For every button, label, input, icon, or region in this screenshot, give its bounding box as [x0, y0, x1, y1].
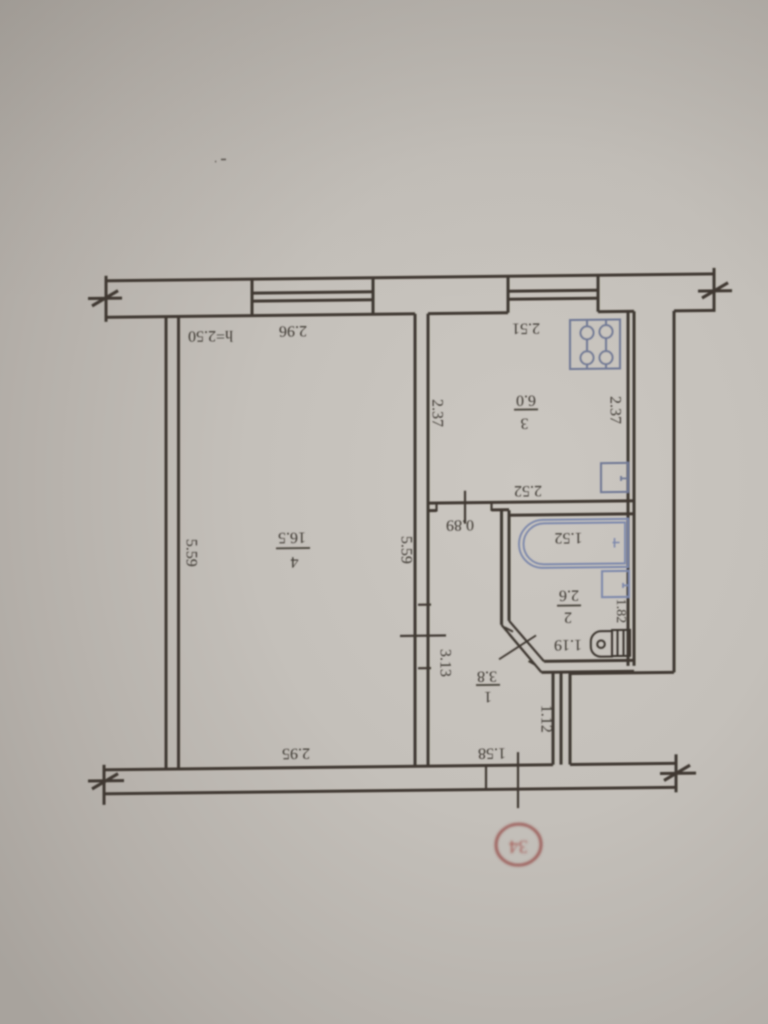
- svg-text:1.58: 1.58: [478, 744, 506, 761]
- svg-text:3.8: 3.8: [477, 667, 497, 684]
- svg-text:1.82: 1.82: [613, 599, 628, 624]
- svg-text:2.37: 2.37: [606, 396, 623, 424]
- svg-text:2.96: 2.96: [279, 322, 307, 339]
- svg-text:3: 3: [521, 414, 529, 431]
- svg-text:1.52: 1.52: [555, 529, 583, 546]
- svg-text:4: 4: [291, 553, 299, 570]
- svg-text:2.6: 2.6: [559, 586, 579, 603]
- svg-text:1.12: 1.12: [537, 705, 554, 733]
- svg-text:3.13: 3.13: [436, 649, 453, 677]
- svg-text:2.51: 2.51: [512, 319, 540, 336]
- svg-text:2.52: 2.52: [514, 482, 542, 499]
- svg-text:h=2.50: h=2.50: [188, 327, 233, 345]
- svg-text:2.95: 2.95: [282, 744, 310, 761]
- svg-text:34: 34: [509, 836, 528, 857]
- svg-text:2: 2: [564, 608, 572, 625]
- svg-text:5.59: 5.59: [397, 536, 414, 564]
- svg-text:6.0: 6.0: [516, 391, 536, 408]
- svg-text:1: 1: [484, 688, 492, 705]
- svg-text:16.5: 16.5: [278, 528, 306, 545]
- svg-text:5.59: 5.59: [182, 539, 199, 567]
- svg-text:2.37: 2.37: [428, 399, 445, 427]
- svg-text:0.89: 0.89: [446, 516, 474, 533]
- svg-text:1.19: 1.19: [554, 636, 582, 653]
